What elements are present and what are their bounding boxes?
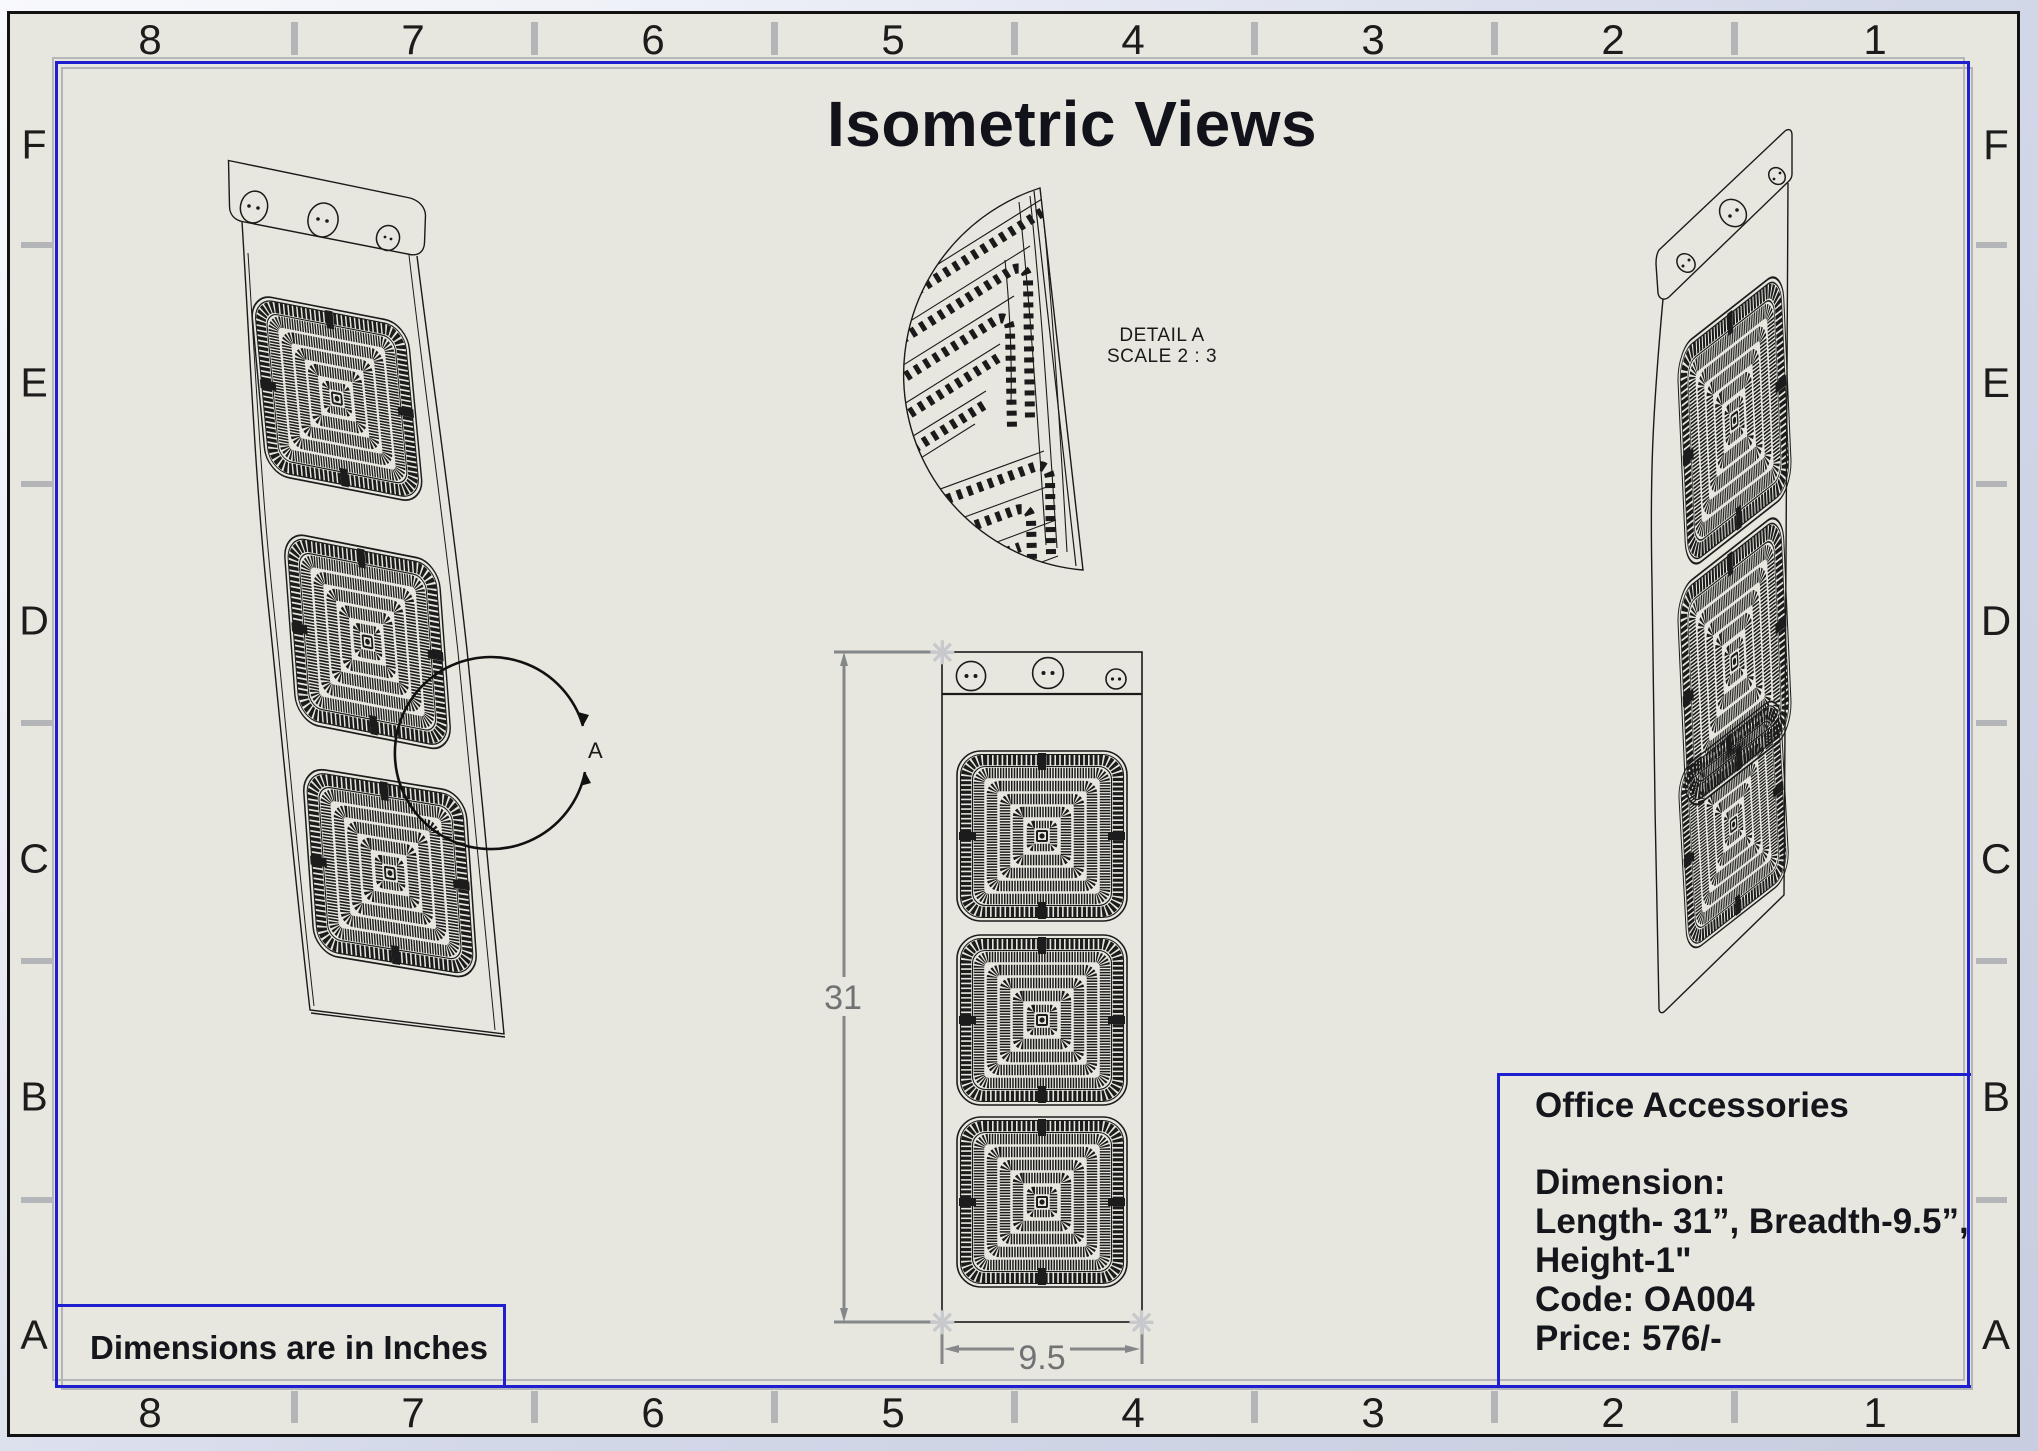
svg-text:9.5: 9.5 [1018,1339,1065,1377]
svg-text:A: A [588,738,603,763]
svg-text:31: 31 [824,979,862,1017]
